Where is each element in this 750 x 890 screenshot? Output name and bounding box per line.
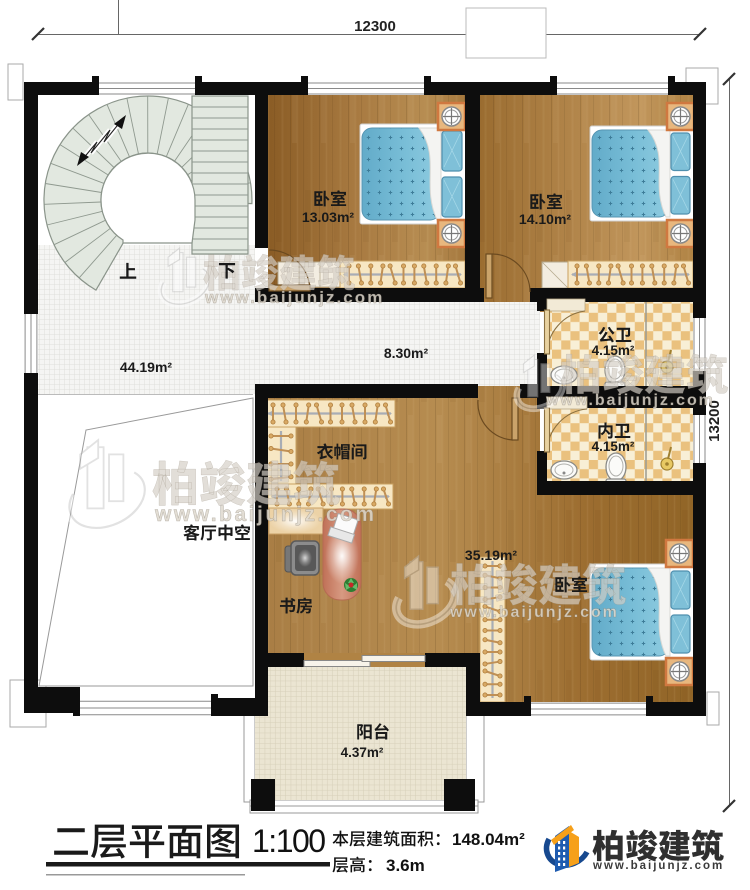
- svg-text:14.10m²: 14.10m²: [519, 211, 571, 227]
- svg-text:www.baijunjz.com: www.baijunjz.com: [154, 503, 377, 526]
- svg-text:12300: 12300: [354, 18, 396, 35]
- svg-text:4.37m²: 4.37m²: [341, 745, 384, 760]
- svg-text:1:100: 1:100: [252, 823, 325, 859]
- svg-text:www.baijunjz.com: www.baijunjz.com: [204, 288, 384, 307]
- svg-text:www.baijunjz.com: www.baijunjz.com: [449, 604, 619, 621]
- svg-text:35.19m²: 35.19m²: [465, 547, 517, 563]
- svg-text:44.19m²: 44.19m²: [120, 359, 172, 375]
- svg-text:13.03m²: 13.03m²: [302, 209, 354, 225]
- svg-text:8.30m²: 8.30m²: [384, 345, 429, 361]
- svg-text:www.baijunjz.com: www.baijunjz.com: [592, 860, 724, 872]
- svg-text:4.15m²: 4.15m²: [592, 439, 635, 454]
- svg-text:4.15m²: 4.15m²: [592, 343, 635, 358]
- svg-text:www.baijunjz.com: www.baijunjz.com: [545, 392, 715, 409]
- svg-text:148.04m²: 148.04m²: [452, 830, 525, 849]
- svg-text:3.6m: 3.6m: [386, 856, 425, 875]
